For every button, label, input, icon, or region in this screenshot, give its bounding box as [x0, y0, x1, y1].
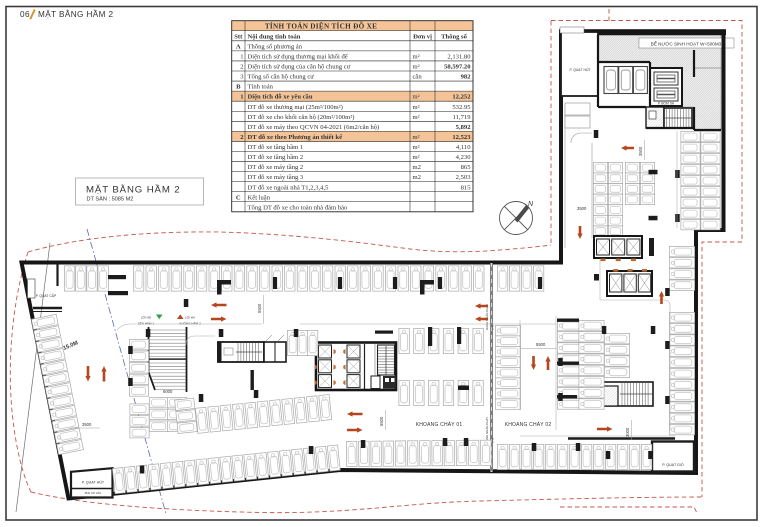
svg-text:2,131.80: 2,131.80 — [447, 54, 471, 61]
svg-text:MẶT BẰNG HẦM 2: MẶT BẰNG HẦM 2 — [86, 185, 181, 196]
svg-text:KHOANG CHÁY 01: KHOANG CHÁY 01 — [416, 421, 463, 428]
svg-text:Tổng DT đỗ xe cho toàn nhà đả: Tổng DT đỗ xe cho toàn nhà đảm bảo — [248, 204, 349, 211]
svg-text:m2: m2 — [413, 174, 421, 181]
svg-text:6000: 6000 — [163, 389, 173, 394]
svg-text:DT đỗ xe máy tầng 3: DT đỗ xe máy tầng 3 — [248, 174, 304, 181]
svg-text:3500: 3500 — [82, 422, 92, 427]
svg-text:m²: m² — [413, 114, 420, 121]
svg-text:MẶT BẰNG HẦM 2: MẶT BẰNG HẦM 2 — [38, 9, 114, 19]
svg-text:5500: 5500 — [536, 342, 546, 347]
svg-text:m²: m² — [413, 154, 420, 161]
svg-text:C: C — [236, 194, 241, 201]
svg-text:Nội dung tính toán: Nội dung tính toán — [248, 33, 301, 40]
svg-text:RANH NGĂN CHÁY: RANH NGĂN CHÁY — [485, 304, 489, 330]
svg-text:A: A — [236, 43, 241, 50]
svg-text:B: B — [236, 84, 241, 91]
svg-text:m²: m² — [413, 144, 420, 151]
svg-text:12,252: 12,252 — [452, 94, 471, 101]
svg-text:4,230: 4,230 — [456, 154, 472, 161]
svg-text:Diện tích đỗ xe yêu cầu: Diện tích đỗ xe yêu cầu — [248, 94, 313, 101]
svg-text:DT đỗ xe thương mại (25m²/100m: DT đỗ xe thương mại (25m²/100m²) — [248, 104, 343, 111]
svg-text:3: 3 — [240, 74, 244, 81]
svg-text:m²: m² — [413, 104, 420, 111]
svg-text:Đơn vị: Đơn vị — [413, 33, 432, 40]
svg-text:P. QUẠT GIÓ: P. QUẠT GIÓ — [662, 462, 684, 467]
svg-text:815: 815 — [461, 184, 472, 191]
svg-text:Diện tích sử dụng của căn hộ c: Diện tích sử dụng của căn hộ chung cư — [248, 64, 351, 71]
svg-text:Diện tích sử dụng thương mại k: Diện tích sử dụng thương mại khối đế — [248, 54, 349, 61]
svg-text:DT đỗ xe máy tầng 2: DT đỗ xe máy tầng 2 — [248, 164, 304, 171]
svg-text:4,110: 4,110 — [456, 144, 471, 151]
svg-text:m²: m² — [413, 134, 420, 141]
svg-text:DT đỗ xe tầng hầm 1: DT đỗ xe tầng hầm 1 — [248, 144, 304, 151]
svg-text:1: 1 — [240, 94, 243, 101]
svg-text:3500: 3500 — [638, 146, 643, 156]
svg-text:DT đỗ xe theo Phương án thiết: DT đỗ xe theo Phương án thiết kế — [248, 134, 344, 141]
svg-text:m²: m² — [413, 94, 420, 101]
svg-text:DT đỗ xe tầng hầm 2: DT đỗ xe tầng hầm 2 — [248, 154, 304, 161]
svg-text:Tính toán: Tính toán — [248, 84, 274, 91]
svg-text:Thông số phương án: Thông số phương án — [248, 43, 303, 50]
svg-text:LỐI HX: LỐI HX — [185, 315, 195, 320]
svg-text:m²: m² — [413, 54, 420, 61]
svg-text:532.95: 532.95 — [452, 104, 471, 111]
svg-text:BỂ NƯỚC SINH HOẠT W=500M3: BỂ NƯỚC SINH HOẠT W=500M3 — [651, 40, 722, 46]
svg-text:RANH NGĂN CHÁY: RANH NGĂN CHÁY — [485, 417, 489, 443]
svg-text:P. QUẠT CẤP: P. QUẠT CẤP — [36, 294, 57, 298]
svg-text:2,503: 2,503 — [456, 174, 472, 181]
svg-text:P. QUẠT HÚT: P. QUẠT HÚT — [570, 67, 591, 72]
svg-text:06: 06 — [20, 10, 30, 19]
svg-text:m²: m² — [413, 64, 420, 71]
svg-text:Kết luận: Kết luận — [248, 194, 271, 201]
svg-text:2: 2 — [240, 64, 243, 71]
svg-text:căn: căn — [413, 74, 423, 81]
svg-text:DT đỗ xe máy theo QCVN 04-2021: DT đỗ xe máy theo QCVN 04-2021 (6m2/căn … — [248, 124, 380, 131]
svg-text:1: 1 — [240, 54, 243, 61]
svg-text:12,523: 12,523 — [452, 134, 471, 141]
svg-text:LỐI HD: LỐI HD — [141, 315, 152, 320]
svg-text:DT đỗ xe cho khối căn hộ (20m²: DT đỗ xe cho khối căn hộ (20m²/100m²) — [248, 114, 355, 121]
svg-text:N: N — [528, 201, 534, 208]
svg-text:Thông số: Thông số — [441, 33, 468, 40]
svg-text:KHOANG CHÁY 02: KHOANG CHÁY 02 — [505, 421, 552, 428]
svg-text:982: 982 — [461, 74, 472, 81]
svg-text:11,719: 11,719 — [453, 114, 472, 121]
svg-text:865: 865 — [461, 164, 472, 171]
svg-text:DT đỗ xe ngoài nhà T1,2,3,4,5: DT đỗ xe ngoài nhà T1,2,3,4,5 — [248, 184, 330, 191]
svg-text:P. BƠM SH: P. BƠM SH — [658, 102, 675, 106]
svg-text:P. QUẠT HÚT: P. QUẠT HÚT — [82, 480, 105, 485]
svg-text:5,892: 5,892 — [456, 124, 472, 131]
svg-text:5500: 5500 — [379, 416, 384, 426]
svg-text:Tổng số căn hộ chung cư: Tổng số căn hộ chung cư — [248, 74, 315, 81]
svg-text:58,597.20: 58,597.20 — [444, 64, 471, 71]
svg-text:TÍNH TOÁN DIỆN TÍCH ĐỖ XE: TÍNH TOÁN DIỆN TÍCH ĐỖ XE — [265, 20, 377, 30]
svg-text:15.0M: 15.0M — [62, 340, 79, 352]
svg-text:LÊN HẦM 1: LÊN HẦM 1 — [138, 321, 155, 326]
svg-text:3000: 3000 — [625, 427, 630, 437]
svg-text:m2: m2 — [413, 164, 421, 171]
svg-text:Stt: Stt — [234, 33, 243, 40]
svg-text:XUỐNG HẦM 2: XUỐNG HẦM 2 — [179, 321, 201, 326]
svg-text:5500: 5500 — [257, 303, 262, 313]
svg-text:3500: 3500 — [577, 206, 587, 211]
svg-text:DT SÀN : 5085 M2: DT SÀN : 5085 M2 — [87, 196, 134, 203]
svg-text:2-W: 2-W — [491, 324, 495, 330]
